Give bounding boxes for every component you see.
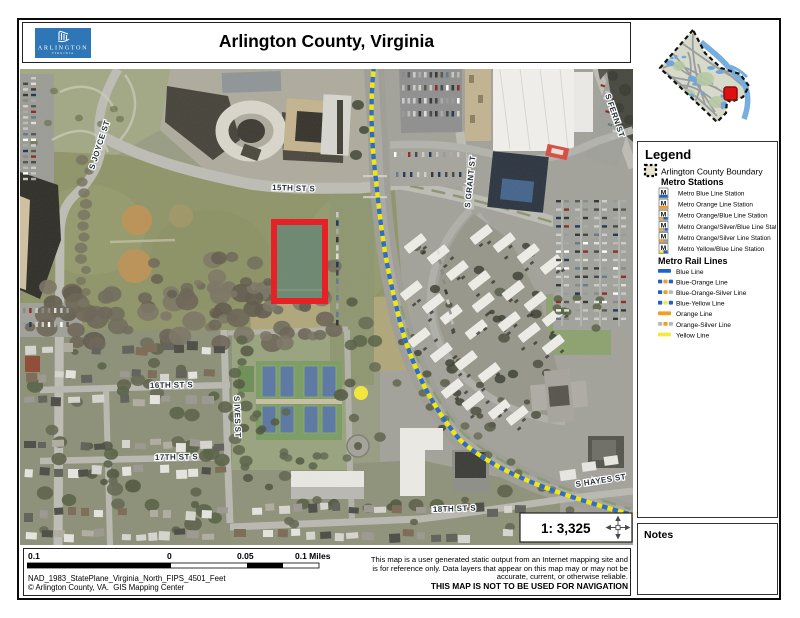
svg-text:16TH ST S: 16TH ST S — [150, 380, 194, 390]
svg-text:Orange Line: Orange Line — [676, 311, 713, 318]
svg-text:15TH ST S: 15TH ST S — [272, 183, 316, 194]
svg-text:18TH ST S: 18TH ST S — [433, 503, 477, 514]
svg-text:VIRGINIA: VIRGINIA — [52, 52, 74, 55]
svg-text:Yellow Line: Yellow Line — [676, 332, 709, 339]
svg-text:Blue-Yellow Line: Blue-Yellow Line — [676, 301, 725, 308]
svg-text:Metro Blue Line Station: Metro Blue Line Station — [678, 191, 745, 198]
svg-text:M: M — [661, 234, 667, 241]
svg-text:Metro Yellow/Blue Line Station: Metro Yellow/Blue Line Station — [678, 246, 765, 253]
svg-text:Metro Orange/Silver Line Stati: Metro Orange/Silver Line Station — [678, 235, 771, 242]
svg-text:M: M — [661, 245, 667, 252]
svg-text:M: M — [661, 200, 667, 207]
svg-text:Metro Orange Line Station: Metro Orange Line Station — [678, 202, 753, 209]
svg-text:S IVES ST: S IVES ST — [232, 396, 242, 438]
svg-text:M: M — [661, 223, 667, 230]
svg-text:Metro Rail Lines: Metro Rail Lines — [658, 256, 728, 266]
svg-text:M: M — [661, 212, 667, 219]
svg-text:1: 3,325: 1: 3,325 — [541, 521, 591, 536]
svg-text:Metro Orange/Blue Line Station: Metro Orange/Blue Line Station — [678, 213, 768, 220]
svg-text:Blue-Orange-Silver Line: Blue-Orange-Silver Line — [676, 290, 747, 297]
svg-text:Blue-Orange Line: Blue-Orange Line — [676, 279, 728, 286]
svg-text:M: M — [661, 189, 667, 196]
svg-text:Orange-Silver Line: Orange-Silver Line — [676, 322, 731, 329]
svg-text:Arlington County Boundary: Arlington County Boundary — [661, 167, 763, 177]
svg-text:Legend: Legend — [645, 147, 691, 162]
svg-text:Metro Orange/Silver/Blue Line: Metro Orange/Silver/Blue Line Statio — [678, 224, 776, 231]
svg-text:17TH ST S: 17TH ST S — [155, 452, 199, 462]
svg-text:Blue Line: Blue Line — [676, 269, 704, 276]
svg-text:Metro Stations: Metro Stations — [661, 177, 724, 187]
